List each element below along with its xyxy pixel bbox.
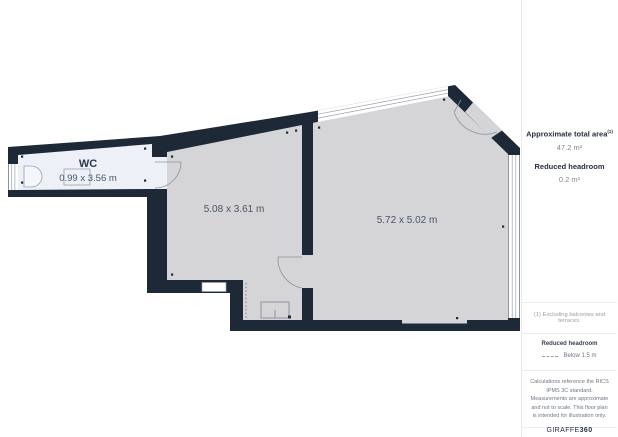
window-step-icon (202, 283, 226, 292)
window-right-icon (509, 155, 520, 318)
disclaimer-text: Calculations reference the RICS IPMS 3C … (529, 378, 610, 421)
footnote-marker: (1) (607, 129, 613, 134)
main-room-dimensions: 5.72 x 5.02 m (377, 215, 438, 226)
toilet-icon (24, 166, 42, 187)
brand-name: GIRAFFE (546, 427, 579, 434)
reduced-headroom-label: Reduced headroom (522, 162, 617, 171)
area-stats: Approximate total area(1) 47.2 m² Reduce… (522, 129, 617, 184)
wc-room-dimensions: 0.99 x 3.56 m (59, 173, 117, 184)
dividing-wall-lower (302, 288, 313, 325)
wc-room-label: WC (79, 158, 97, 170)
dividing-wall-upper (302, 114, 313, 255)
total-area-value: 47.2 m² (522, 143, 617, 152)
legend-title: Reduced headroom (522, 341, 617, 347)
floor-plan-page: WC 0.99 x 3.56 m 5.08 x 3.61 m 5.72 x 5.… (0, 0, 618, 437)
legend-item-label: Below 1.5 m (563, 353, 596, 359)
disclaimer-section: Calculations reference the RICS IPMS 3C … (522, 370, 617, 428)
reduced-headroom-value: 0.2 m² (522, 175, 617, 184)
sink-unit-icon (261, 302, 291, 319)
legend-section: Reduced headroom Below 1.5 m (522, 333, 617, 370)
giraffe360-logo: GIRAFFE360 (529, 427, 610, 434)
legend-row: Below 1.5 m (522, 353, 617, 359)
total-area-label: Approximate total area(1) (522, 129, 617, 139)
dashed-line-icon (542, 356, 558, 357)
footnote-text: (1) Excluding balconies and terraces. (522, 302, 617, 333)
window-wc-icon (9, 164, 19, 190)
brand-suffix: 360 (580, 427, 593, 434)
info-sidebar: Approximate total area(1) 47.2 m² Reduce… (521, 0, 617, 437)
middle-room-dimensions: 5.08 x 3.61 m (204, 204, 265, 215)
